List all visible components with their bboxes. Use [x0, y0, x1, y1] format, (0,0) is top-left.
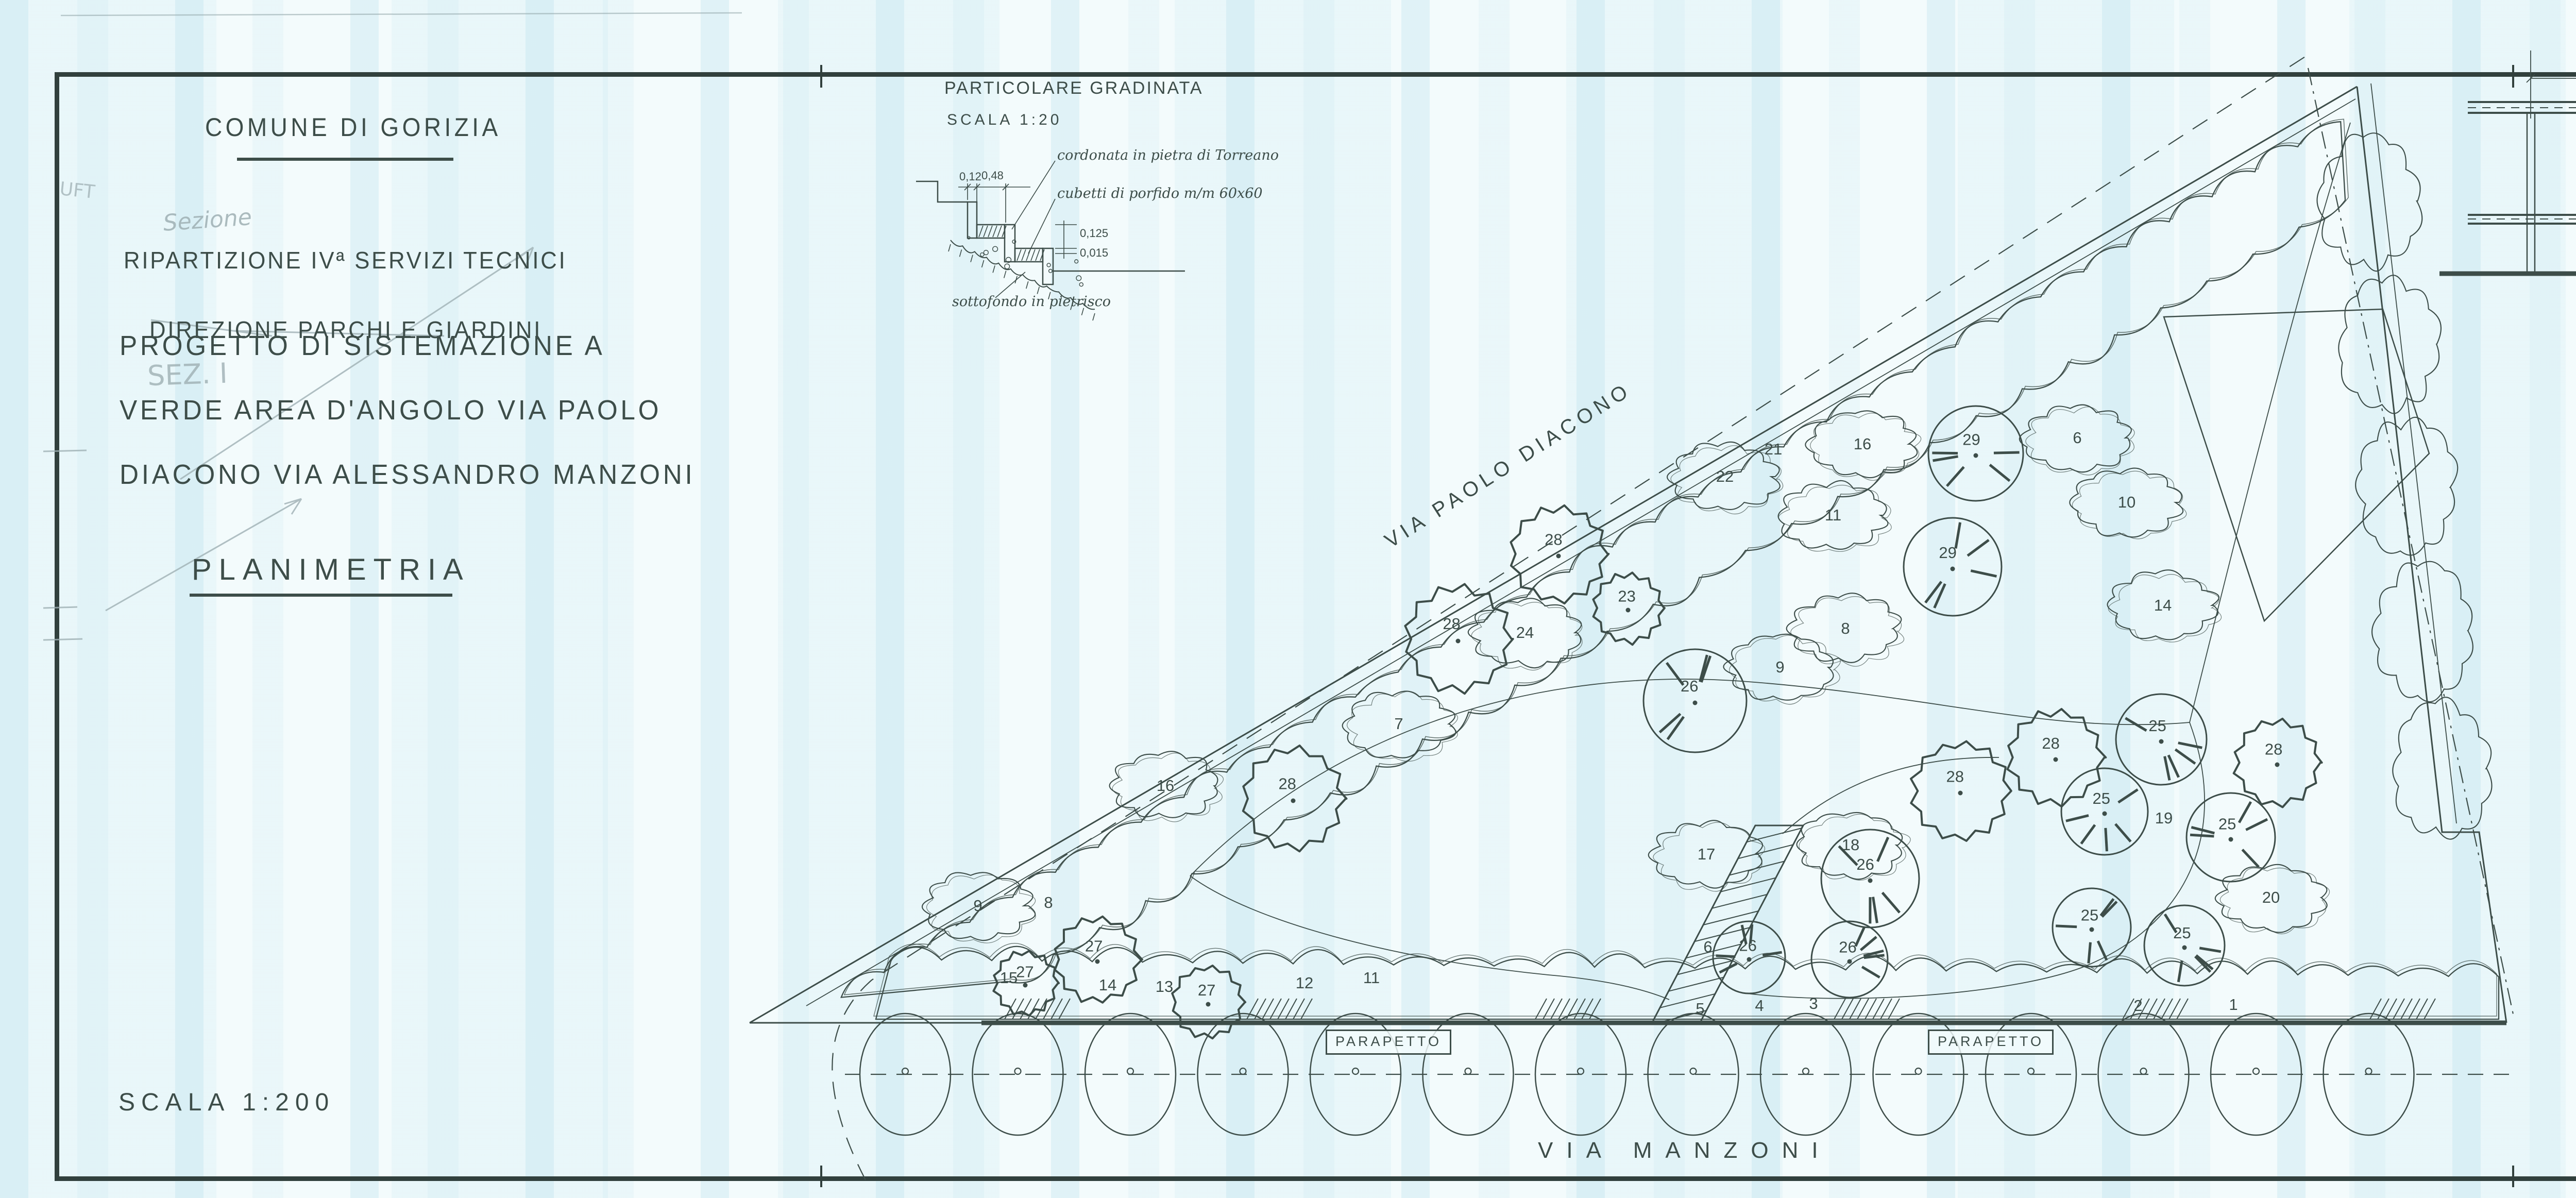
shrub-band-top: [841, 122, 2345, 997]
grass-hatch-patch: [1834, 999, 1900, 1019]
plant-group-number: 24: [1516, 623, 1534, 642]
plant-group-number: 6: [1703, 938, 1712, 956]
tree-number-label: 28: [1946, 767, 1964, 785]
tree-number-label: 25: [2081, 906, 2098, 924]
plant-group-number: 8: [1044, 893, 1053, 912]
tree-number-label: 25: [2218, 815, 2236, 833]
tree-symbol-smooth: 29: [1904, 518, 2002, 616]
plant-group-number: 3: [1809, 994, 1818, 1013]
tree-symbol-spiky: 28: [1511, 505, 1608, 603]
pencil-note-sez-i: SEZ. I: [147, 357, 228, 392]
tree-number-label: 28: [1545, 531, 1562, 549]
plant-group-number: 9: [973, 897, 982, 915]
tree-symbol-spiky: 28: [1911, 741, 2011, 841]
tree-number-label: 27: [1085, 937, 1103, 955]
tree-number-label: 29: [1939, 544, 1956, 562]
plant-group-number: 17: [1698, 845, 1715, 864]
road-label-via-manzoni: VIA MANZONI: [1538, 1138, 1832, 1163]
tree-symbol-smooth: 26: [1713, 921, 1785, 993]
plant-group-number: 9: [1775, 658, 1784, 677]
tree-number-label: 28: [2265, 740, 2282, 758]
plant-group-number: 16: [1157, 777, 1174, 795]
gradinata-dim-riser: 0,12: [959, 170, 981, 183]
drawing-sheet: 2626262629292525252525282823282828282727…: [0, 0, 2576, 1198]
plant-group-number: 10: [2118, 493, 2136, 512]
tree-number-label: 28: [1278, 775, 1296, 793]
plant-group-number: 19: [2155, 809, 2173, 828]
tree-symbol-smooth: 25: [2061, 768, 2148, 855]
parapetto-plan-label-1: PARAPETTO: [1326, 1030, 1451, 1055]
gradinata-dim-block: 0,125: [1080, 227, 1108, 240]
plant-group-number: 13: [1156, 977, 1173, 996]
tree-symbol-spiky: 28: [2008, 709, 2106, 806]
tree-symbol-spiky: 28: [2234, 719, 2322, 807]
plant-group-number: 7: [1394, 715, 1403, 733]
tree-number-label: 28: [2042, 734, 2059, 752]
gradinata-note-cubetti: cubetti di porfido m/m 60x60: [1057, 185, 1263, 201]
plant-group-number: 11: [1825, 506, 1841, 525]
plant-group-number: 1: [2229, 995, 2238, 1014]
adjacent-building-outline: [2164, 309, 2429, 621]
tree-symbol-spiky: 27: [1172, 966, 1245, 1038]
plant-group-number: 2: [2133, 997, 2142, 1015]
gradinata-dim-tread: 0,48: [981, 169, 1004, 182]
gradinata-dim-cube: 0,015: [1080, 246, 1108, 260]
plant-group-number: 22: [1716, 467, 1734, 486]
tree-symbol-smooth: 26: [1643, 649, 1747, 752]
plant-group-number: 12: [1296, 974, 1313, 992]
plant-group-number: 20: [2262, 888, 2280, 907]
tree-symbol-smooth: 25: [2116, 694, 2207, 785]
plant-group-number: 5: [1696, 1000, 1704, 1018]
project-title-line2: VERDE AREA D'ANGOLO VIA PAOLO: [120, 394, 662, 426]
tree-number-label: 23: [1618, 587, 1635, 605]
tree-number-label: 27: [1198, 981, 1215, 999]
municipality-title: COMUNE DI GORIZIA: [205, 112, 501, 142]
grass-hatch-patch: [2370, 999, 2435, 1019]
tree-number-label: 26: [1839, 938, 1856, 956]
plan-stairs: [1651, 825, 1803, 1024]
tree-number-label: 28: [1443, 615, 1460, 633]
grass-hatch-patch: [1247, 999, 1312, 1019]
plant-group-number: 11: [1363, 969, 1380, 987]
plant-group-number: 18: [1842, 836, 1859, 854]
plant-group-number: 4: [1755, 997, 1764, 1015]
east-boundary: [2357, 87, 2506, 1023]
plan-scale-label: SCALA 1:200: [118, 1088, 335, 1117]
tree-symbol-smooth: 29: [1928, 406, 2023, 501]
project-title-line1: PROGETTO DI SISTEMAZIONE A: [120, 330, 605, 362]
tree-number-label: 27: [1016, 963, 1033, 981]
gradinata-scale: SCALA 1:20: [947, 111, 1062, 129]
tree-symbol-smooth: 25: [2053, 888, 2131, 967]
shrub-blob-east: [2372, 562, 2473, 702]
tree-number-label: 25: [2148, 717, 2166, 735]
municipality-underline: [237, 158, 453, 161]
tree-symbol-smooth: 26: [1821, 830, 1919, 927]
department-line: RIPARTIZIONE IVª SERVIZI TECNICI: [124, 246, 567, 274]
tree-number-label: 25: [2092, 789, 2110, 807]
shrub-blob-east: [2355, 417, 2458, 555]
gradinata-note-cordonata: cordonata in pietra di Torreano: [1057, 147, 1279, 163]
tree-symbol-spiky: 28: [1243, 746, 1347, 851]
tree-number-label: 25: [2173, 924, 2191, 942]
tree-number-label: 29: [1962, 430, 1980, 448]
road-edge-dashed: [832, 54, 2513, 1180]
grass-hatch-patch: [1535, 999, 1601, 1019]
tree-number-label: 26: [1856, 855, 1874, 873]
plant-group-number: 14: [1099, 976, 1116, 994]
plan-drawing: 2626262629292525252525282823282828282727…: [0, 0, 2576, 1198]
plant-group-number: 6: [2073, 429, 2081, 447]
tree-symbol-smooth: 25: [2187, 793, 2275, 882]
plant-group-number: 15: [1000, 969, 1018, 987]
parapetto-detail-drawing: [2439, 50, 2576, 303]
plant-group-number: 16: [1854, 435, 1871, 453]
tree-number-label: 26: [1739, 936, 1756, 954]
parapetto-dim-horizontal: [2527, 50, 2576, 119]
plant-group-number: 21: [1765, 440, 1782, 459]
parapetto-plan-label-2: PARAPETTO: [1928, 1030, 2054, 1055]
plant-group-number: 8: [1841, 619, 1850, 638]
plant-group-number: 14: [2154, 596, 2172, 615]
tree-symbol-spiky: 23: [1593, 572, 1665, 645]
planimetria-title: PLANIMETRIA: [192, 552, 470, 587]
grass-hatch-patch: [2123, 999, 2188, 1019]
tree-number-label: 26: [1681, 677, 1698, 695]
tree-symbol-smooth: 25: [2144, 905, 2225, 986]
shrub-blob-east: [2338, 275, 2441, 413]
planimetria-underline: [190, 594, 452, 597]
park-paths: [1190, 123, 2350, 1000]
tree-symbol-spiky: 28: [1405, 584, 1513, 694]
project-title-line3: DIACONO VIA ALESSANDRO MANZONI: [120, 459, 695, 491]
gradinata-note-sottofondo: sottofondo in pietrisco: [952, 294, 1111, 310]
gradinata-title: PARTICOLARE GRADINATA: [944, 78, 1204, 98]
pencil-note-uft: UFT: [59, 178, 96, 203]
shrub-blob-east: [2393, 697, 2492, 839]
scan-edge-lines: [61, 10, 2576, 15]
